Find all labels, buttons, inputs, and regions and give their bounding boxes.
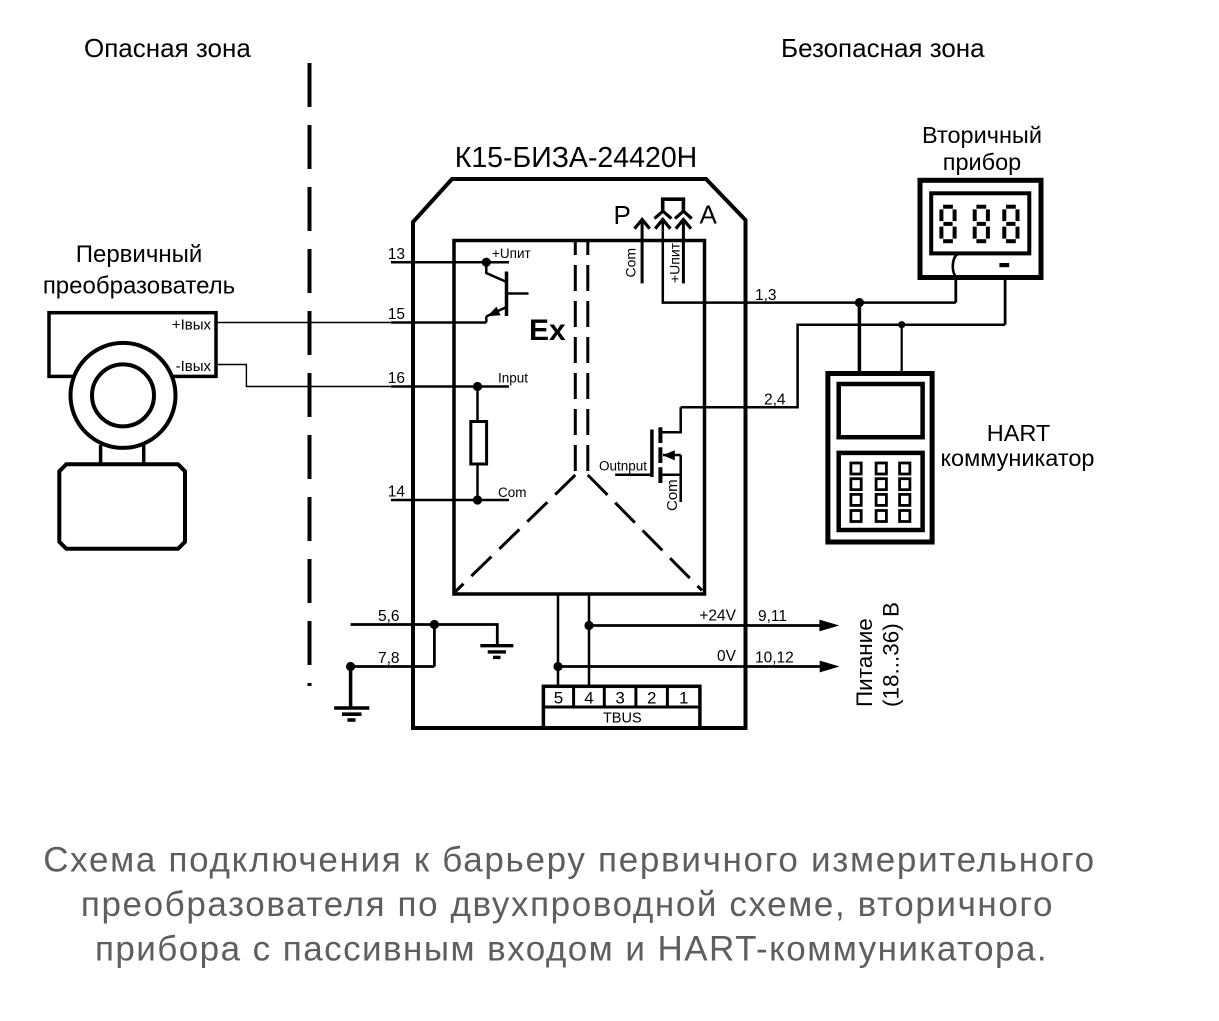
svg-text:коммуникатор: коммуникатор xyxy=(940,445,1094,471)
svg-text:7,8: 7,8 xyxy=(378,650,400,667)
svg-text:TBUS: TBUS xyxy=(603,711,642,727)
svg-text:P: P xyxy=(614,200,631,230)
svg-text:Com: Com xyxy=(623,248,639,278)
svg-text:HART: HART xyxy=(987,420,1051,446)
svg-text:13: 13 xyxy=(388,246,405,263)
svg-text:3: 3 xyxy=(615,689,624,708)
svg-text:Outnput: Outnput xyxy=(599,459,647,474)
svg-text:Первичный: Первичный xyxy=(76,241,203,268)
svg-text:15: 15 xyxy=(388,306,405,323)
svg-text:16: 16 xyxy=(388,370,405,387)
svg-text:-Iвых: -Iвых xyxy=(176,358,212,375)
svg-text:прибора с пассивным входом и H: прибора с пассивным входом и HART-коммун… xyxy=(95,930,1048,969)
svg-text:4: 4 xyxy=(584,689,593,708)
svg-text:+Iвых: +Iвых xyxy=(172,317,212,334)
svg-text:2: 2 xyxy=(647,689,656,708)
svg-text:К15-БИЗА-24420Н: К15-БИЗА-24420Н xyxy=(455,142,698,174)
svg-text:Com: Com xyxy=(664,479,681,511)
svg-text:Схема подключения к барьеру пе: Схема подключения к барьеру первичного и… xyxy=(43,841,1096,880)
svg-text:A: A xyxy=(700,200,718,230)
svg-text:Com: Com xyxy=(498,485,527,500)
svg-text:Ex: Ex xyxy=(529,314,566,347)
svg-text:Питание: Питание xyxy=(852,618,877,707)
svg-text:+Uпит: +Uпит xyxy=(667,242,683,283)
svg-text:Вторичный: Вторичный xyxy=(922,122,1042,148)
svg-text:преобразователь: преобразователь xyxy=(43,273,235,300)
svg-text:Безопасная зона: Безопасная зона xyxy=(781,33,985,63)
svg-text:10,12: 10,12 xyxy=(755,650,794,667)
svg-text:1,3: 1,3 xyxy=(755,287,777,304)
svg-text:(18...36) В: (18...36) В xyxy=(879,602,904,707)
svg-text:0V: 0V xyxy=(717,648,737,665)
svg-text:5,6: 5,6 xyxy=(378,608,400,625)
svg-text:+Uпит: +Uпит xyxy=(492,246,531,261)
svg-text:преобразователя по двухпроводн: преобразователя по двухпроводной схеме, … xyxy=(81,885,1054,924)
svg-text:14: 14 xyxy=(388,484,406,501)
svg-text:2,4: 2,4 xyxy=(764,392,786,409)
svg-text:1: 1 xyxy=(679,689,688,708)
svg-text:Опасная зона: Опасная зона xyxy=(84,33,251,63)
svg-text:+24V: +24V xyxy=(699,608,736,625)
svg-text:Input: Input xyxy=(498,371,528,386)
svg-text:9,11: 9,11 xyxy=(758,608,787,625)
svg-text:прибор: прибор xyxy=(943,149,1022,175)
svg-text:5: 5 xyxy=(554,689,563,708)
